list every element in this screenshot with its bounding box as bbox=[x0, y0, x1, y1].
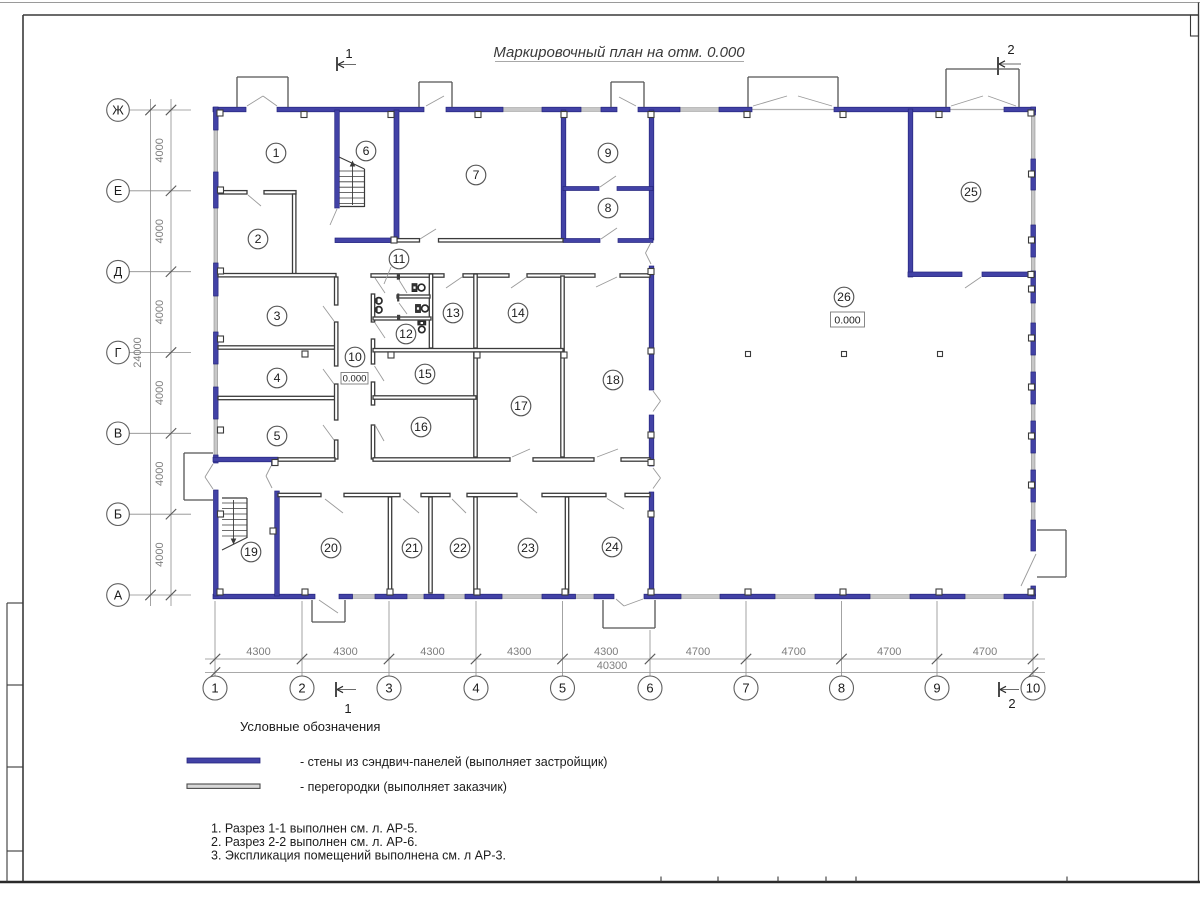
svg-text:4000: 4000 bbox=[154, 462, 166, 486]
svg-text:1: 1 bbox=[344, 701, 351, 716]
svg-text:4000: 4000 bbox=[154, 542, 166, 566]
svg-text:7: 7 bbox=[473, 168, 480, 182]
svg-text:А: А bbox=[114, 588, 123, 602]
svg-text:8: 8 bbox=[838, 681, 845, 696]
svg-text:24000: 24000 bbox=[132, 337, 144, 368]
svg-text:10: 10 bbox=[1026, 681, 1040, 696]
svg-text:- стены из сэндвич-панелей (вы: - стены из сэндвич-панелей (выполняет за… bbox=[300, 755, 607, 769]
svg-text:6: 6 bbox=[646, 681, 653, 696]
svg-text:6: 6 bbox=[363, 144, 370, 158]
svg-text:Условные обозначения: Условные обозначения bbox=[240, 719, 380, 734]
svg-text:4700: 4700 bbox=[973, 646, 997, 658]
svg-text:Д: Д bbox=[114, 265, 123, 279]
svg-text:18: 18 bbox=[606, 373, 620, 387]
svg-text:19: 19 bbox=[244, 545, 258, 559]
svg-text:Маркировочный план на отм. 0.0: Маркировочный план на отм. 0.000 bbox=[493, 44, 745, 61]
svg-text:20: 20 bbox=[324, 541, 338, 555]
svg-text:4000: 4000 bbox=[154, 300, 166, 324]
svg-text:4700: 4700 bbox=[686, 646, 710, 658]
svg-text:9: 9 bbox=[605, 146, 612, 160]
svg-text:15: 15 bbox=[418, 367, 432, 381]
svg-text:12: 12 bbox=[399, 327, 413, 341]
svg-text:16: 16 bbox=[414, 420, 428, 434]
svg-text:Ж: Ж bbox=[112, 103, 124, 117]
svg-text:10: 10 bbox=[348, 350, 362, 364]
svg-text:4700: 4700 bbox=[877, 646, 901, 658]
svg-text:14: 14 bbox=[511, 306, 525, 320]
svg-text:4300: 4300 bbox=[246, 646, 270, 658]
svg-text:4300: 4300 bbox=[594, 646, 618, 658]
svg-text:Б: Б bbox=[114, 508, 122, 522]
svg-text:23: 23 bbox=[521, 541, 535, 555]
svg-text:5: 5 bbox=[559, 681, 566, 696]
svg-text:22: 22 bbox=[453, 541, 467, 555]
svg-text:2. Разрез 2-2 выполнен см. л.: 2. Разрез 2-2 выполнен см. л. АР-6. bbox=[211, 835, 418, 849]
svg-text:4000: 4000 bbox=[154, 219, 166, 243]
svg-text:4300: 4300 bbox=[420, 646, 444, 658]
svg-text:4700: 4700 bbox=[781, 646, 805, 658]
svg-text:3. Экспликация помещений выпол: 3. Экспликация помещений выполнена см. л… bbox=[211, 849, 506, 863]
svg-text:1: 1 bbox=[345, 46, 352, 61]
svg-text:- перегородки (выполняет заказ: - перегородки (выполняет заказчик) bbox=[300, 780, 507, 794]
svg-text:0.000: 0.000 bbox=[343, 374, 367, 385]
svg-text:17: 17 bbox=[514, 399, 528, 413]
svg-text:3: 3 bbox=[274, 309, 281, 323]
svg-text:26: 26 bbox=[837, 290, 851, 304]
svg-text:В: В bbox=[114, 427, 122, 441]
svg-text:2: 2 bbox=[1008, 696, 1015, 711]
svg-text:24: 24 bbox=[605, 540, 619, 554]
svg-text:2: 2 bbox=[298, 681, 305, 696]
svg-text:1: 1 bbox=[273, 146, 280, 160]
svg-text:25: 25 bbox=[964, 185, 978, 199]
svg-text:13: 13 bbox=[446, 306, 460, 320]
svg-text:4300: 4300 bbox=[333, 646, 357, 658]
svg-text:4: 4 bbox=[472, 681, 479, 696]
svg-text:1. Разрез 1-1 выполнен см. л.: 1. Разрез 1-1 выполнен см. л. АР-5. bbox=[211, 822, 418, 836]
svg-text:40300: 40300 bbox=[597, 660, 628, 672]
svg-text:Е: Е bbox=[114, 184, 122, 198]
svg-text:5: 5 bbox=[274, 429, 281, 443]
svg-text:4300: 4300 bbox=[507, 646, 531, 658]
svg-text:8: 8 bbox=[605, 201, 612, 215]
svg-text:2: 2 bbox=[1007, 42, 1014, 57]
svg-text:7: 7 bbox=[742, 681, 749, 696]
svg-text:4000: 4000 bbox=[154, 381, 166, 405]
svg-text:2: 2 bbox=[255, 232, 262, 246]
svg-text:1: 1 bbox=[211, 681, 218, 696]
svg-text:4: 4 bbox=[274, 371, 281, 385]
svg-text:11: 11 bbox=[393, 252, 406, 266]
svg-text:21: 21 bbox=[405, 541, 419, 555]
svg-text:0.000: 0.000 bbox=[834, 315, 860, 327]
svg-text:4000: 4000 bbox=[154, 138, 166, 162]
svg-text:3: 3 bbox=[385, 681, 392, 696]
svg-text:Г: Г bbox=[115, 346, 122, 360]
svg-text:9: 9 bbox=[933, 681, 940, 696]
